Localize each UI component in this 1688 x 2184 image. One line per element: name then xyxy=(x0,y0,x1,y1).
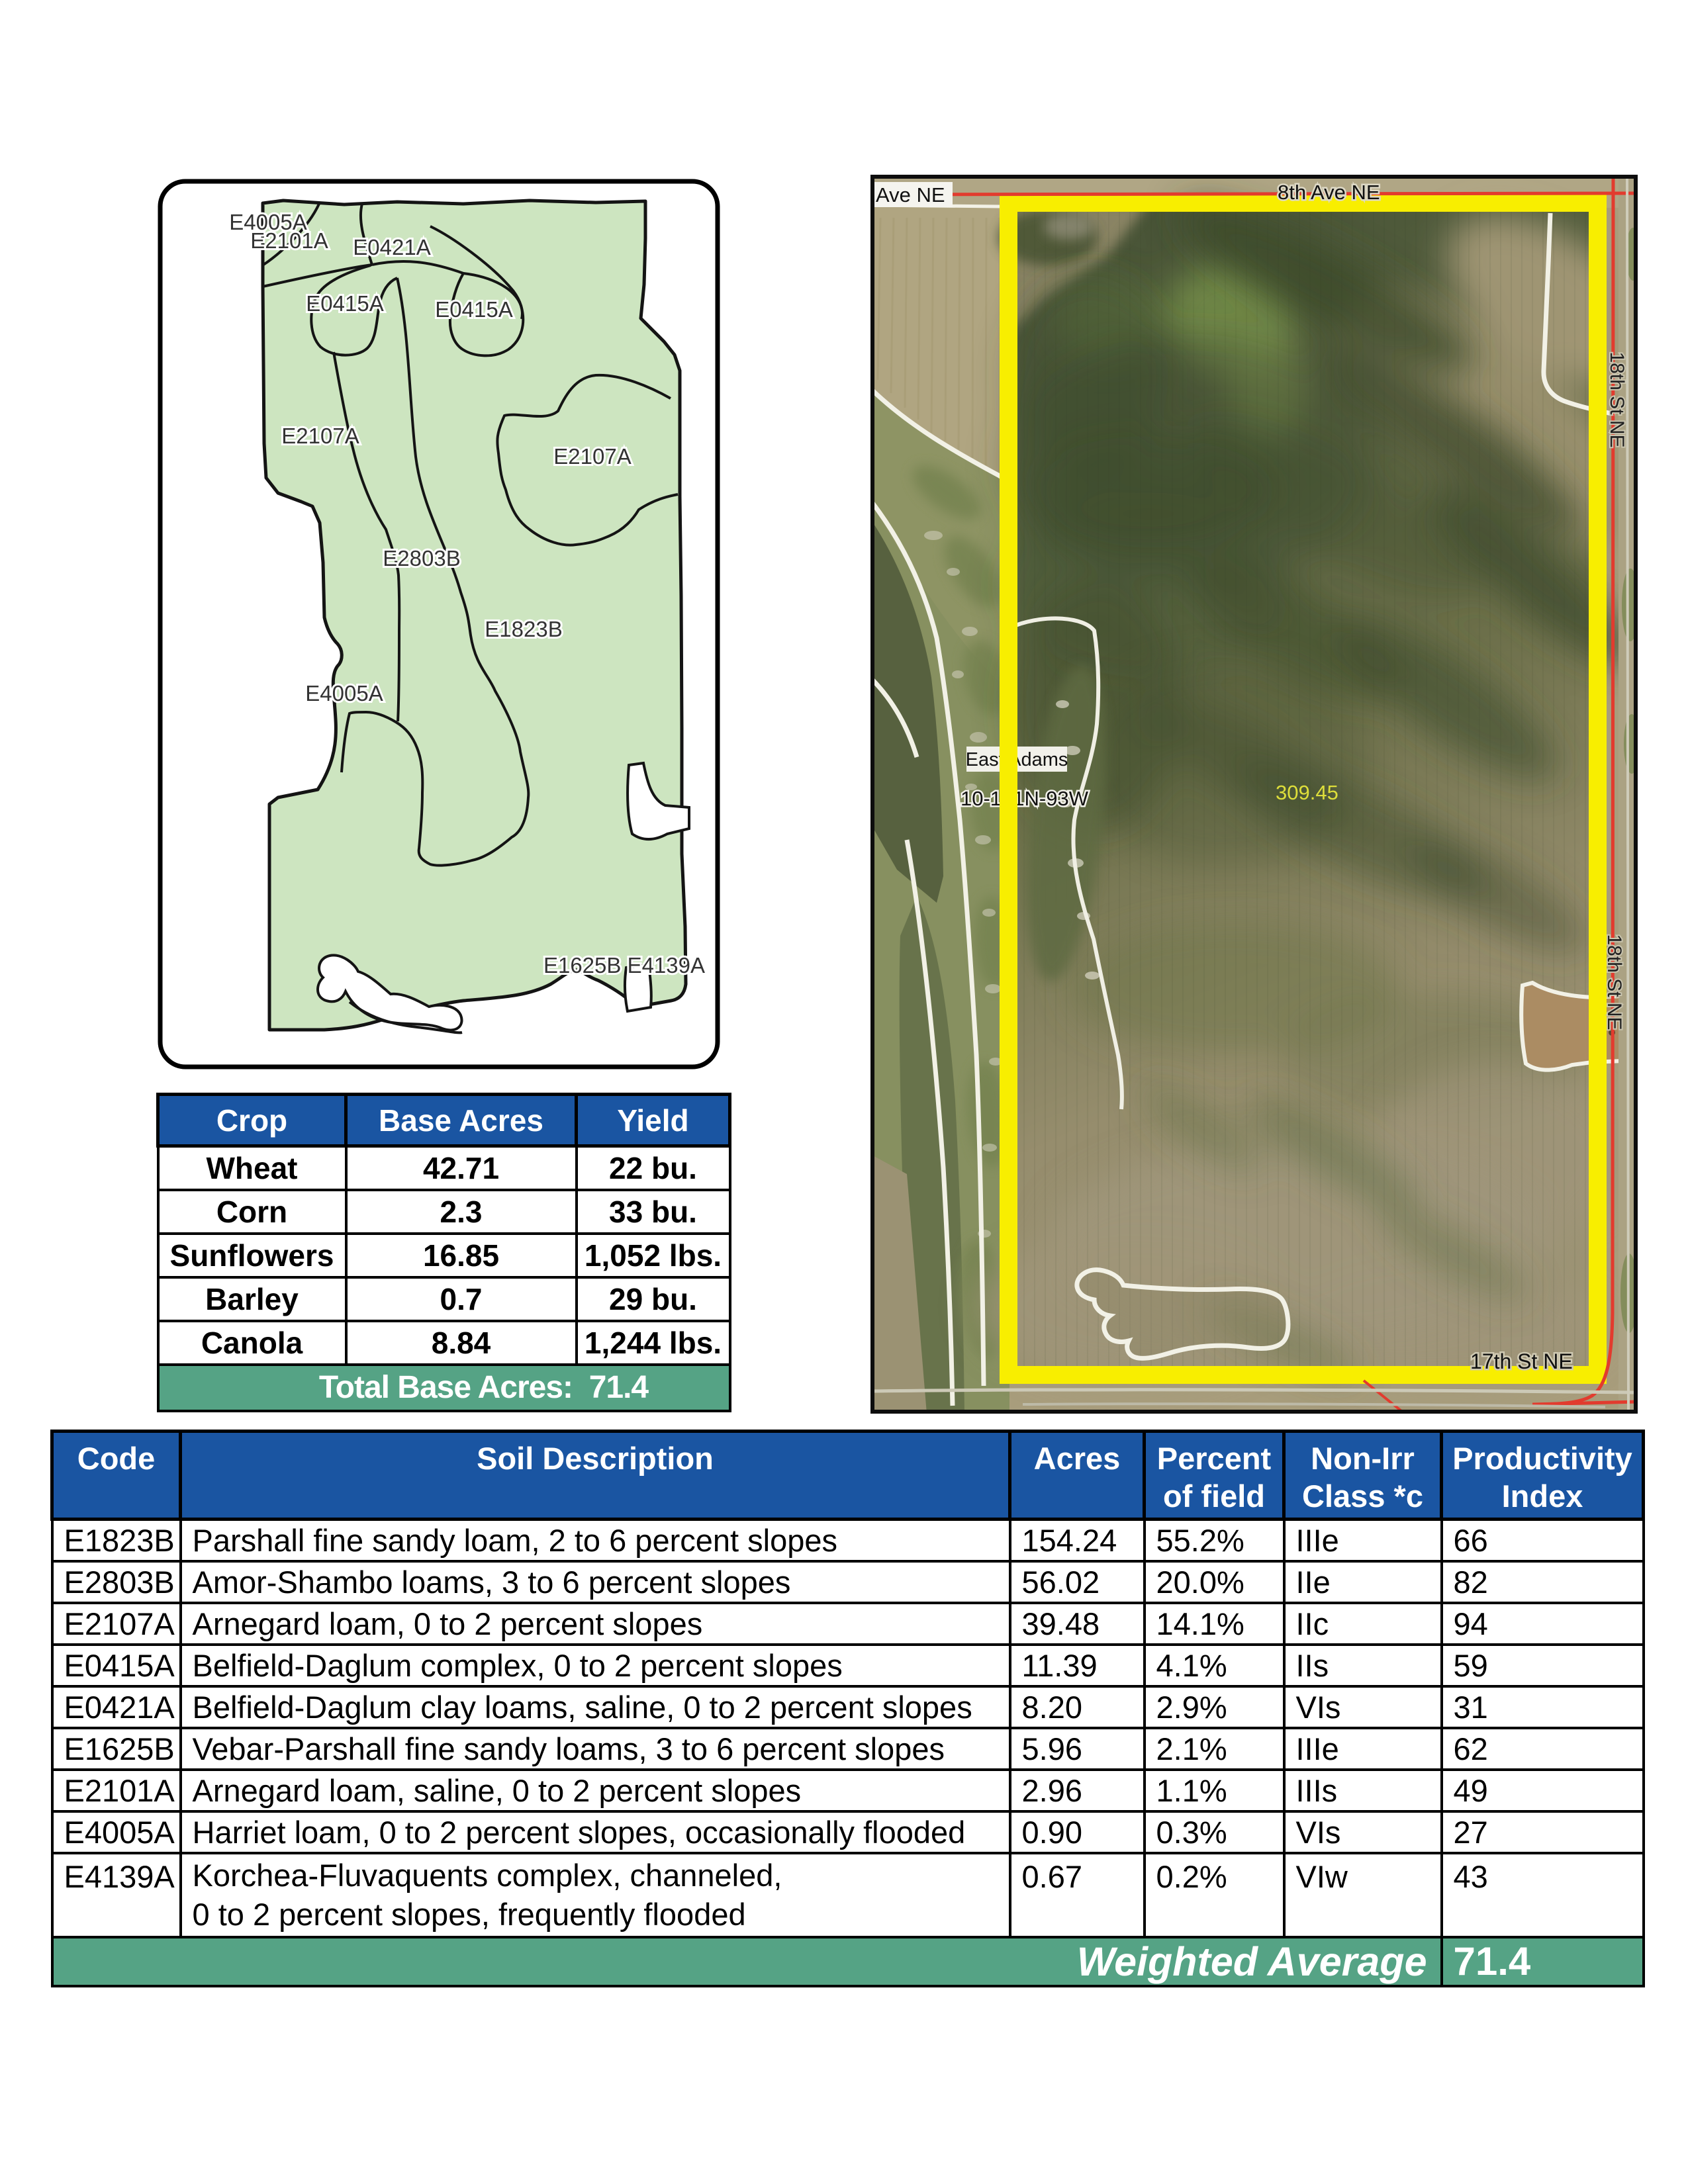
svg-text:17th St NE: 17th St NE xyxy=(1470,1349,1573,1373)
svg-text:E2101A: E2101A xyxy=(250,228,328,253)
svg-text:E0421A: E0421A xyxy=(353,235,430,259)
svg-text:E0415A: E0415A xyxy=(306,291,383,316)
svg-text:E2107A: E2107A xyxy=(553,444,631,469)
svg-text:18th St NE: 18th St NE xyxy=(1606,351,1628,447)
svg-text:E1625B E4139A: E1625B E4139A xyxy=(543,953,705,978)
svg-text:E0415A: E0415A xyxy=(435,297,512,322)
svg-text:E1823B: E1823B xyxy=(485,617,562,641)
svg-text:10-131N-93W: 10-131N-93W xyxy=(961,787,1089,810)
svg-text:8th Ave NE: 8th Ave NE xyxy=(1278,181,1380,204)
svg-text:E4005A: E4005A xyxy=(305,681,383,705)
svg-text:18th St NE: 18th St NE xyxy=(1603,934,1625,1030)
svg-text:Ave NE: Ave NE xyxy=(876,183,945,206)
svg-text:309.45: 309.45 xyxy=(1276,781,1338,804)
svg-text:E2803B: E2803B xyxy=(383,546,460,570)
svg-text:E2107A: E2107A xyxy=(281,424,359,448)
